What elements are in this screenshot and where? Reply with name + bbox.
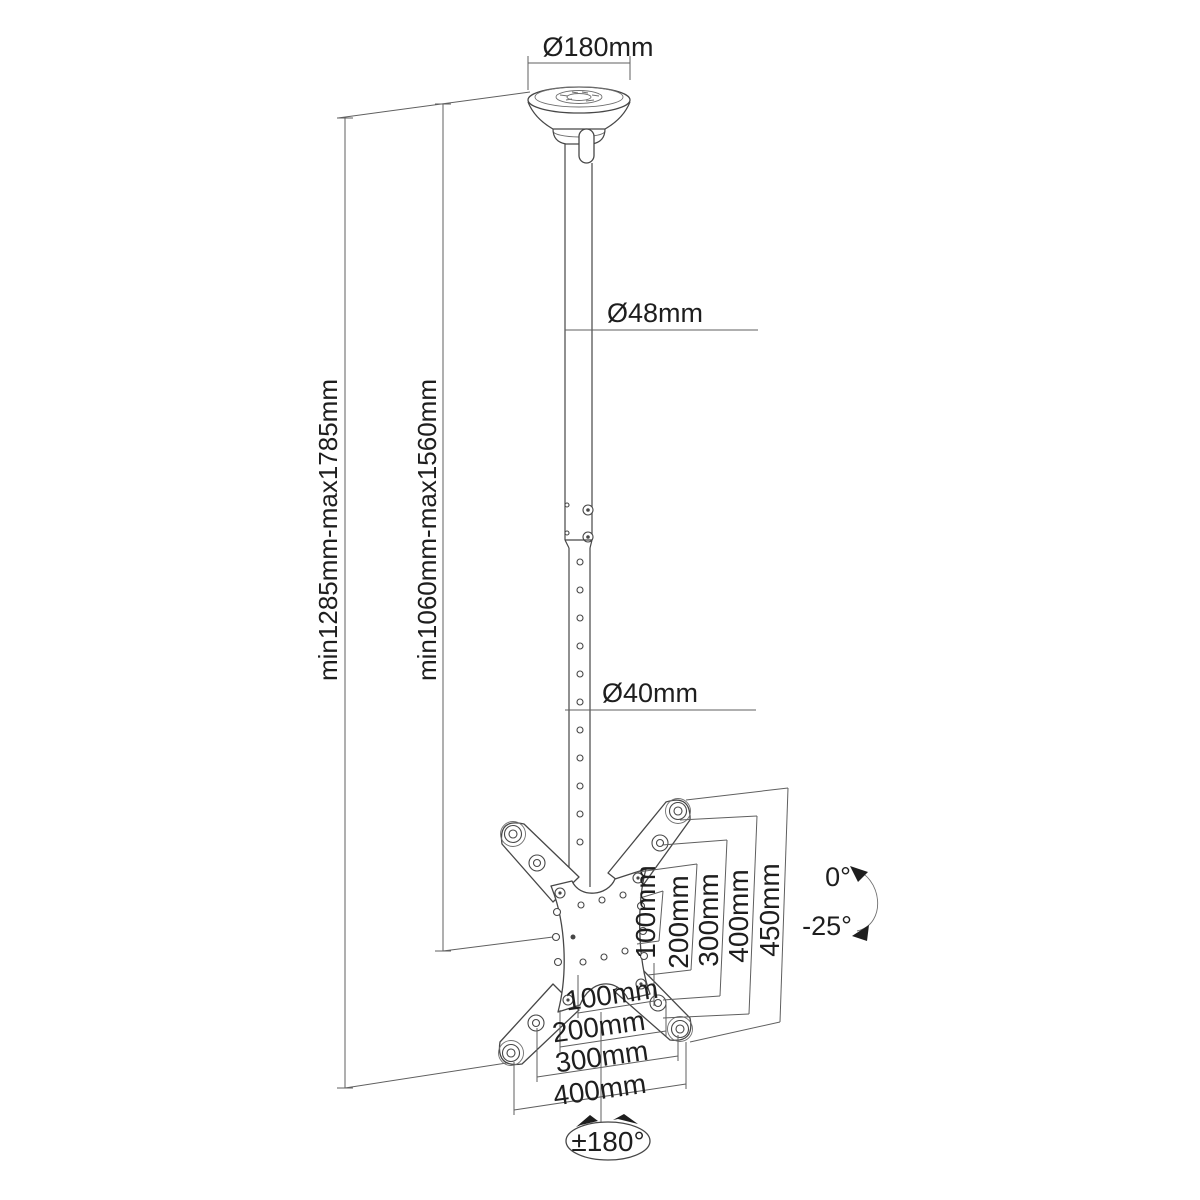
label-vesa-v-450: 450mm — [754, 863, 785, 956]
ceiling-mount-technical-drawing: min1285mm-max1785mm min1060mm-max1560mm … — [0, 0, 1200, 1200]
rotation-indicator: ±180° — [566, 1114, 650, 1160]
tube-height-dimension: min1060mm-max1560mm — [412, 104, 553, 951]
label-vesa-v-200: 200mm — [663, 875, 694, 968]
diagram-page: min1285mm-max1785mm min1060mm-max1560mm … — [0, 0, 1200, 1200]
inner-tube — [569, 548, 590, 887]
ceiling-plate — [528, 87, 630, 163]
extension-line-top — [338, 92, 530, 118]
label-overall-height: min1285mm-max1785mm — [313, 379, 343, 681]
hole — [565, 503, 569, 507]
adjustment-slot — [579, 129, 594, 163]
hole — [565, 531, 569, 535]
label-plate-diameter: Ø180mm — [542, 32, 653, 62]
label-rotation-range: ±180° — [571, 1126, 644, 1157]
label-upper-tube-diameter: Ø48mm — [607, 298, 703, 328]
label-vesa-v-300: 300mm — [693, 873, 724, 966]
label-inner-tube-diameter: Ø40mm — [602, 678, 698, 708]
clamp-knob-center — [586, 508, 590, 512]
label-tube-height: min1060mm-max1560mm — [412, 379, 442, 681]
tilt-indicator: 0° -25° — [802, 862, 878, 941]
plate-diameter-dimension: Ø180mm — [528, 32, 654, 90]
label-vesa-v-400: 400mm — [723, 869, 754, 962]
upper-tube-diameter-callout: Ø48mm — [565, 298, 758, 330]
upper-tube — [565, 144, 593, 548]
label-tilt-min: -25° — [802, 911, 852, 941]
clamp-knob-center — [586, 535, 590, 539]
extension-line-bottom — [443, 937, 553, 951]
inner-tube-diameter-callout: Ø40mm — [565, 678, 756, 710]
extension-line-bottom — [345, 1062, 513, 1088]
tilt-arrow-up-icon — [850, 866, 868, 882]
label-vesa-v-100: 100mm — [630, 865, 661, 958]
height-adjust-holes — [577, 559, 583, 845]
tilt-arrow-down-icon — [852, 925, 869, 941]
label-tilt-max: 0° — [825, 862, 851, 892]
